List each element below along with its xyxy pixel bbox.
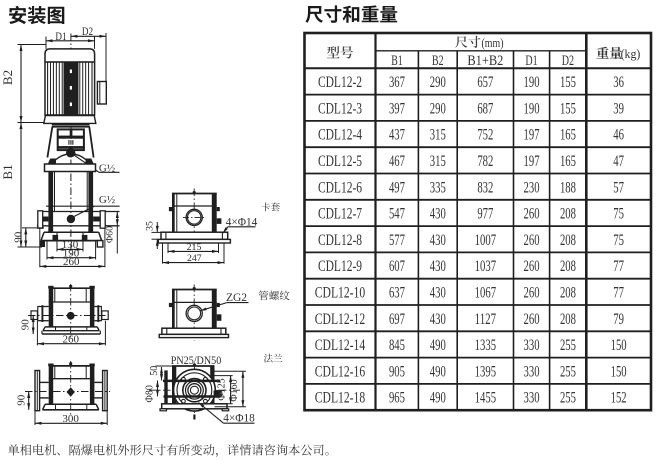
svg-text:B1: B1 [0, 164, 15, 179]
svg-text:155: 155 [560, 74, 576, 91]
svg-text:47: 47 [613, 153, 624, 170]
svg-text:190: 190 [524, 74, 540, 91]
svg-text:367: 367 [389, 74, 405, 91]
svg-text:CDL12-6: CDL12-6 [318, 179, 362, 196]
svg-text:832: 832 [477, 179, 493, 196]
svg-text:79: 79 [613, 311, 624, 328]
svg-text:577: 577 [389, 232, 405, 249]
svg-text:977: 977 [477, 206, 493, 223]
svg-text:D2: D2 [562, 53, 574, 69]
svg-text:CDL12-8: CDL12-8 [318, 232, 362, 249]
svg-text:B2: B2 [432, 53, 444, 69]
svg-text:CDL12-12: CDL12-12 [315, 311, 365, 328]
svg-text:1335: 1335 [475, 337, 497, 354]
svg-text:B1+B2: B1+B2 [467, 53, 503, 69]
svg-text:Φ160: Φ160 [229, 379, 240, 401]
svg-text:255: 255 [560, 363, 576, 380]
svg-text:430: 430 [430, 285, 446, 302]
svg-text:315: 315 [430, 153, 446, 170]
svg-text:430: 430 [430, 232, 446, 249]
svg-text:467: 467 [389, 153, 405, 170]
svg-text:39: 39 [613, 101, 624, 118]
svg-text:330: 330 [524, 363, 540, 380]
svg-text:150: 150 [611, 337, 627, 354]
svg-text:260: 260 [524, 285, 540, 302]
svg-text:965: 965 [389, 390, 405, 407]
svg-text:1455: 1455 [475, 390, 497, 407]
svg-text:46: 46 [613, 127, 624, 144]
svg-text:260: 260 [524, 206, 540, 223]
svg-text:36: 36 [613, 74, 624, 91]
svg-text:(mm): (mm) [482, 35, 504, 50]
svg-text:215: 215 [187, 242, 202, 253]
svg-text:697: 697 [389, 311, 405, 328]
svg-text:260: 260 [63, 256, 80, 268]
svg-text:430: 430 [430, 258, 446, 275]
svg-text:190: 190 [524, 101, 540, 118]
svg-text:260: 260 [524, 258, 540, 275]
svg-text:845: 845 [389, 337, 405, 354]
svg-text:57: 57 [613, 179, 624, 196]
svg-text:Φ80: Φ80 [145, 385, 156, 402]
svg-text:155: 155 [560, 101, 576, 118]
svg-text:Φ125: Φ125 [216, 378, 227, 400]
svg-text:255: 255 [560, 390, 576, 407]
svg-text:430: 430 [430, 311, 446, 328]
svg-text:290: 290 [430, 74, 446, 91]
svg-text:Φ60: Φ60 [104, 226, 115, 243]
svg-text:300: 300 [62, 413, 79, 425]
svg-text:208: 208 [560, 232, 576, 249]
svg-text:ZG2: ZG2 [226, 292, 247, 304]
svg-text:B1: B1 [391, 53, 403, 69]
svg-text:75: 75 [613, 232, 624, 249]
svg-text:165: 165 [560, 153, 576, 170]
svg-text:CDL12-18: CDL12-18 [315, 390, 366, 407]
svg-text:152: 152 [611, 390, 627, 407]
svg-text:335: 335 [430, 179, 446, 196]
svg-text:230: 230 [524, 179, 540, 196]
svg-text:197: 197 [524, 127, 540, 144]
svg-text:290: 290 [430, 101, 446, 118]
svg-text:77: 77 [613, 258, 624, 275]
svg-text:260: 260 [524, 232, 540, 249]
svg-text:188: 188 [560, 179, 576, 196]
svg-text:315: 315 [430, 127, 446, 144]
svg-text:CDL12-3: CDL12-3 [318, 101, 362, 118]
svg-text:330: 330 [524, 390, 540, 407]
svg-text:D1: D1 [525, 53, 537, 69]
svg-text:1007: 1007 [475, 232, 497, 249]
svg-text:CDL12-9: CDL12-9 [318, 258, 362, 275]
svg-text:CDL12-5: CDL12-5 [318, 153, 362, 170]
svg-text:330: 330 [524, 337, 540, 354]
svg-text:905: 905 [389, 363, 405, 380]
svg-text:497: 497 [389, 179, 405, 196]
svg-text:260: 260 [524, 311, 540, 328]
svg-text:CDL12-4: CDL12-4 [318, 127, 362, 144]
svg-text:G½: G½ [99, 194, 115, 206]
svg-text:752: 752 [477, 127, 493, 144]
svg-text:90: 90 [12, 231, 24, 243]
svg-text:490: 490 [430, 363, 446, 380]
svg-text:547: 547 [389, 206, 405, 223]
svg-text:CDL12-14: CDL12-14 [315, 337, 366, 354]
svg-text:90: 90 [20, 319, 32, 331]
svg-text:247: 247 [187, 253, 202, 264]
svg-text:260: 260 [62, 334, 79, 346]
svg-text:208: 208 [560, 206, 576, 223]
svg-text:D1: D1 [55, 31, 66, 43]
svg-text:G½: G½ [99, 163, 115, 175]
svg-text:687: 687 [477, 101, 493, 118]
svg-text:782: 782 [477, 153, 493, 170]
svg-text:607: 607 [389, 258, 405, 275]
svg-text:490: 490 [430, 337, 446, 354]
svg-text:50: 50 [149, 366, 160, 376]
svg-text:1037: 1037 [475, 258, 497, 275]
svg-text:397: 397 [389, 101, 405, 118]
svg-text:490: 490 [430, 390, 446, 407]
svg-text:1395: 1395 [475, 363, 497, 380]
svg-text:430: 430 [430, 206, 446, 223]
svg-text:197: 197 [524, 153, 540, 170]
svg-text:90: 90 [15, 394, 27, 406]
svg-text:CDL12-16: CDL12-16 [315, 363, 366, 380]
svg-text:657: 657 [477, 74, 493, 91]
svg-text:1127: 1127 [475, 311, 497, 328]
svg-text:150: 150 [611, 363, 627, 380]
svg-text:D2: D2 [82, 26, 93, 38]
svg-text:437: 437 [389, 127, 405, 144]
svg-text:CDL12-7: CDL12-7 [318, 206, 362, 223]
svg-text:CDL12-10: CDL12-10 [315, 285, 366, 302]
svg-text:77: 77 [613, 285, 624, 302]
svg-text:B2: B2 [0, 70, 15, 85]
svg-text:35: 35 [145, 221, 156, 231]
svg-text:CDL12-2: CDL12-2 [318, 74, 362, 91]
svg-text:255: 255 [560, 337, 576, 354]
svg-text:637: 637 [389, 285, 405, 302]
svg-text:1067: 1067 [475, 285, 497, 302]
svg-text:(kg): (kg) [621, 46, 641, 61]
svg-text:75: 75 [613, 206, 624, 223]
svg-text:208: 208 [560, 258, 576, 275]
svg-text:208: 208 [560, 311, 576, 328]
svg-text:165: 165 [560, 127, 576, 144]
svg-text:208: 208 [560, 285, 576, 302]
